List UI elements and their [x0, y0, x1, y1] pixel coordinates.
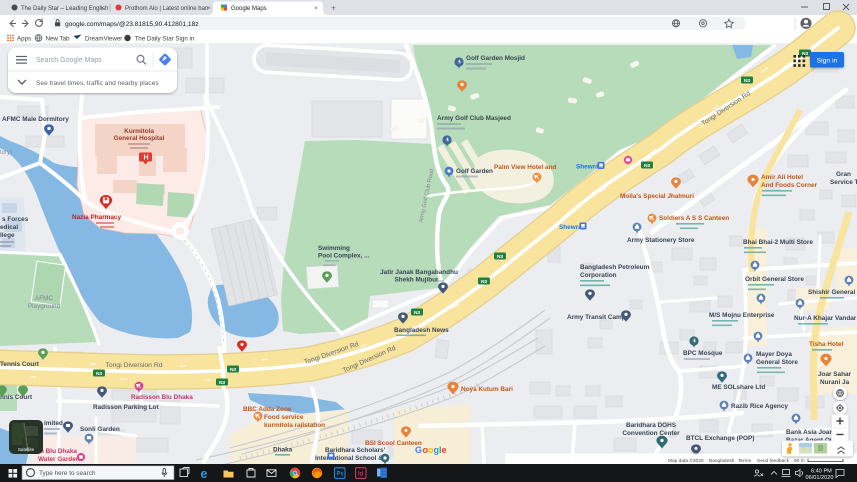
- svg-text:Nur-A Khajar Vandar: Nur-A Khajar Vandar: [794, 315, 857, 322]
- svg-text:llege: llege: [0, 232, 15, 239]
- svg-text:×: ×: [207, 5, 211, 12]
- svg-text:Prothom Alo | Latest online ba: Prothom Alo | Latest online ban: [125, 6, 208, 12]
- svg-text:H: H: [143, 155, 148, 162]
- svg-text:Golf Garden Mosjid: Golf Garden Mosjid: [466, 55, 525, 62]
- svg-text:Type here to search: Type here to search: [39, 470, 96, 477]
- svg-text:nnis Court: nnis Court: [0, 394, 33, 401]
- svg-text:6:40 PM: 6:40 PM: [811, 468, 832, 474]
- svg-text:The Daily Star – Leading Engli: The Daily Star – Leading English: [21, 6, 108, 12]
- svg-text:See travel times, traffic and: See travel times, traffic and nearby pla…: [36, 80, 159, 87]
- svg-text:×: ×: [314, 5, 318, 12]
- svg-text:BSI Scool Canteen: BSI Scool Canteen: [365, 440, 422, 447]
- svg-text:Shewra: Shewra: [576, 164, 599, 171]
- svg-text:Golf Garden: Golf Garden: [456, 168, 493, 175]
- svg-text:Satellite: Satellite: [18, 447, 35, 452]
- svg-text:Tisha Hotel: Tisha Hotel: [809, 341, 844, 348]
- svg-text:BTCL Exchange (POP): BTCL Exchange (POP): [686, 435, 754, 442]
- svg-text:tory): tory): [0, 150, 12, 156]
- svg-text:Bangladesh News: Bangladesh News: [394, 327, 449, 334]
- svg-text:Amir Ali Hotel: Amir Ali Hotel: [761, 174, 803, 181]
- svg-text:G: G: [415, 445, 422, 455]
- svg-text:Convention Center: Convention Center: [622, 430, 680, 437]
- svg-text:Army Transit Camp: Army Transit Camp: [567, 314, 626, 321]
- svg-text:N3: N3: [744, 78, 750, 84]
- svg-text:edical: edical: [0, 224, 18, 231]
- svg-text:Playground: Playground: [28, 303, 61, 310]
- svg-text:Army Stationery Store: Army Stationery Store: [627, 237, 695, 244]
- svg-text:Radisson Blu Dhaka: Radisson Blu Dhaka: [131, 394, 193, 401]
- svg-text:Gran: Gran: [836, 171, 851, 178]
- svg-text:Nurani Ja: Nurani Ja: [820, 379, 850, 386]
- svg-text:imited: imited: [44, 420, 63, 427]
- svg-text:Nazia Pharmacy: Nazia Pharmacy: [72, 214, 121, 221]
- svg-text:N3: N3: [414, 310, 420, 316]
- svg-text:n Blu Dhaka: n Blu Dhaka: [40, 448, 77, 455]
- svg-text:Pool Complex, ...: Pool Complex, ...: [318, 253, 370, 260]
- svg-text:BBC Adda Zone: BBC Adda Zone: [243, 406, 292, 413]
- svg-text:International School &..: International School &..: [315, 455, 387, 462]
- svg-text:Soldiers A S S Canteen: Soldiers A S S Canteen: [659, 215, 729, 222]
- svg-text:Swimming: Swimming: [318, 245, 350, 252]
- svg-text:Army Golf Club Masjeed: Army Golf Club Masjeed: [437, 115, 511, 122]
- svg-text:Apps: Apps: [17, 35, 31, 42]
- svg-text:Noya Kutum Bari: Noya Kutum Bari: [461, 386, 513, 393]
- svg-text:Search Google Maps: Search Google Maps: [36, 57, 102, 64]
- svg-text:Joar Sahar: Joar Sahar: [818, 371, 852, 378]
- svg-text:The Daily Star Sign in: The Daily Star Sign in: [135, 35, 195, 42]
- svg-text:N3: N3: [497, 254, 503, 260]
- svg-text:N3: N3: [644, 163, 650, 169]
- svg-text:Kurmitola: Kurmitola: [124, 128, 154, 135]
- svg-text:N3: N3: [96, 371, 102, 377]
- svg-text:General Store: General Store: [756, 359, 798, 366]
- svg-text:e: e: [442, 445, 447, 455]
- svg-text:DreamViewer: DreamViewer: [85, 35, 122, 42]
- svg-text:Orbit General Store: Orbit General Store: [745, 276, 804, 283]
- svg-text:Map data ©2020: Map data ©2020: [668, 457, 704, 464]
- svg-text:Send feedback: Send feedback: [757, 458, 790, 464]
- svg-text:Jatir Janak Bangabandhu: Jatir Janak Bangabandhu: [380, 269, 458, 276]
- svg-text:General Hospital: General Hospital: [114, 135, 165, 142]
- svg-text:Shishir General St: Shishir General St: [808, 289, 857, 296]
- svg-text:Radisson Parking Lot: Radisson Parking Lot: [93, 404, 160, 411]
- svg-text:New Tab: New Tab: [46, 35, 71, 42]
- svg-text:And Foods Corner: And Foods Corner: [761, 182, 818, 189]
- svg-text:Razib Rice Agency: Razib Rice Agency: [731, 403, 788, 410]
- svg-text:Tongi Diversion Rd: Tongi Diversion Rd: [105, 362, 162, 369]
- svg-text:Bhai Bhai-2 Multi Store: Bhai Bhai-2 Multi Store: [743, 239, 813, 246]
- svg-text:+: +: [331, 4, 336, 13]
- svg-text:06/01/2020: 06/01/2020: [806, 475, 834, 481]
- svg-text:M/S Mojnu Enterprise: M/S Mojnu Enterprise: [709, 312, 775, 319]
- svg-text:s Forces: s Forces: [2, 216, 29, 223]
- svg-text:google.com/maps/@23.81815,90.4: google.com/maps/@23.81815,90.412801,18z: [65, 21, 199, 28]
- svg-text:Google Maps: Google Maps: [231, 6, 267, 12]
- svg-text:Tennis Court: Tennis Court: [0, 361, 40, 368]
- svg-text:N3: N3: [230, 367, 236, 373]
- svg-text:Id: Id: [358, 472, 363, 478]
- svg-text:Mayer Doya: Mayer Doya: [756, 351, 792, 358]
- svg-text:Dhaka: Dhaka: [273, 447, 293, 454]
- svg-text:Sonli Garden: Sonli Garden: [80, 426, 120, 433]
- svg-text:Shekh Mujibur...: Shekh Mujibur...: [395, 277, 444, 284]
- svg-text:Corporation: Corporation: [580, 272, 617, 279]
- svg-text:Sign in: Sign in: [817, 57, 838, 64]
- svg-text:AFMC Male Dormitory: AFMC Male Dormitory: [2, 116, 69, 123]
- svg-text:ME SOLshare Ltd: ME SOLshare Ltd: [712, 384, 765, 391]
- svg-text:Molla's Special Jhalmuri: Molla's Special Jhalmuri: [620, 193, 694, 200]
- svg-text:kurmitola railstation: kurmitola railstation: [264, 422, 325, 429]
- svg-text:Bangladesh Petroleum: Bangladesh Petroleum: [580, 264, 650, 271]
- svg-text:Food service: Food service: [264, 414, 304, 421]
- svg-text:BPC Mosque: BPC Mosque: [683, 350, 723, 357]
- svg-text:AFMC: AFMC: [35, 295, 53, 302]
- svg-text:Shewra: Shewra: [559, 224, 582, 231]
- svg-text:Baridhara DOHS: Baridhara DOHS: [626, 422, 677, 429]
- svg-text:Service T: Service T: [830, 179, 857, 186]
- svg-text:N3: N3: [481, 279, 487, 285]
- svg-text:Ps: Ps: [337, 472, 344, 478]
- svg-text:50 m: 50 m: [794, 458, 805, 464]
- svg-text:e: e: [201, 467, 208, 481]
- svg-text:Terms: Terms: [738, 458, 752, 464]
- svg-text:Bangladesh: Bangladesh: [709, 458, 735, 464]
- svg-text:Water Garden: Water Garden: [38, 456, 80, 463]
- svg-text:×: ×: [100, 5, 104, 12]
- svg-text:N3: N3: [219, 380, 225, 386]
- svg-text:Palm View Hotel and: Palm View Hotel and: [494, 164, 556, 171]
